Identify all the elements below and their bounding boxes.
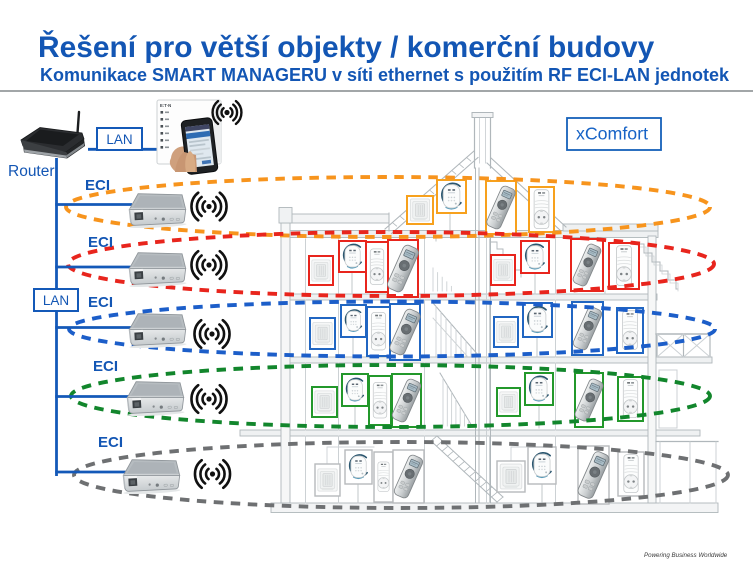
svg-text:LAN: LAN (43, 293, 69, 308)
svg-text:Řešení pro větší objekty / kom: Řešení pro větší objekty / komerční budo… (38, 30, 655, 64)
svg-text:LAN: LAN (106, 132, 132, 147)
svg-text:ECI: ECI (88, 294, 113, 311)
svg-text:Powering Business Worldwide: Powering Business Worldwide (644, 552, 728, 559)
svg-text:xComfort: xComfort (576, 124, 648, 144)
svg-text:ECI: ECI (85, 177, 110, 194)
svg-text:ECI: ECI (93, 358, 118, 375)
svg-text:ECI: ECI (98, 434, 123, 451)
svg-text:Router: Router (8, 163, 55, 180)
svg-text:E:T·N: E:T·N (160, 103, 171, 108)
svg-text:ECI: ECI (88, 234, 113, 251)
svg-text:Komunikace SMART MANAGERU v sí: Komunikace SMART MANAGERU v síti etherne… (40, 65, 730, 85)
